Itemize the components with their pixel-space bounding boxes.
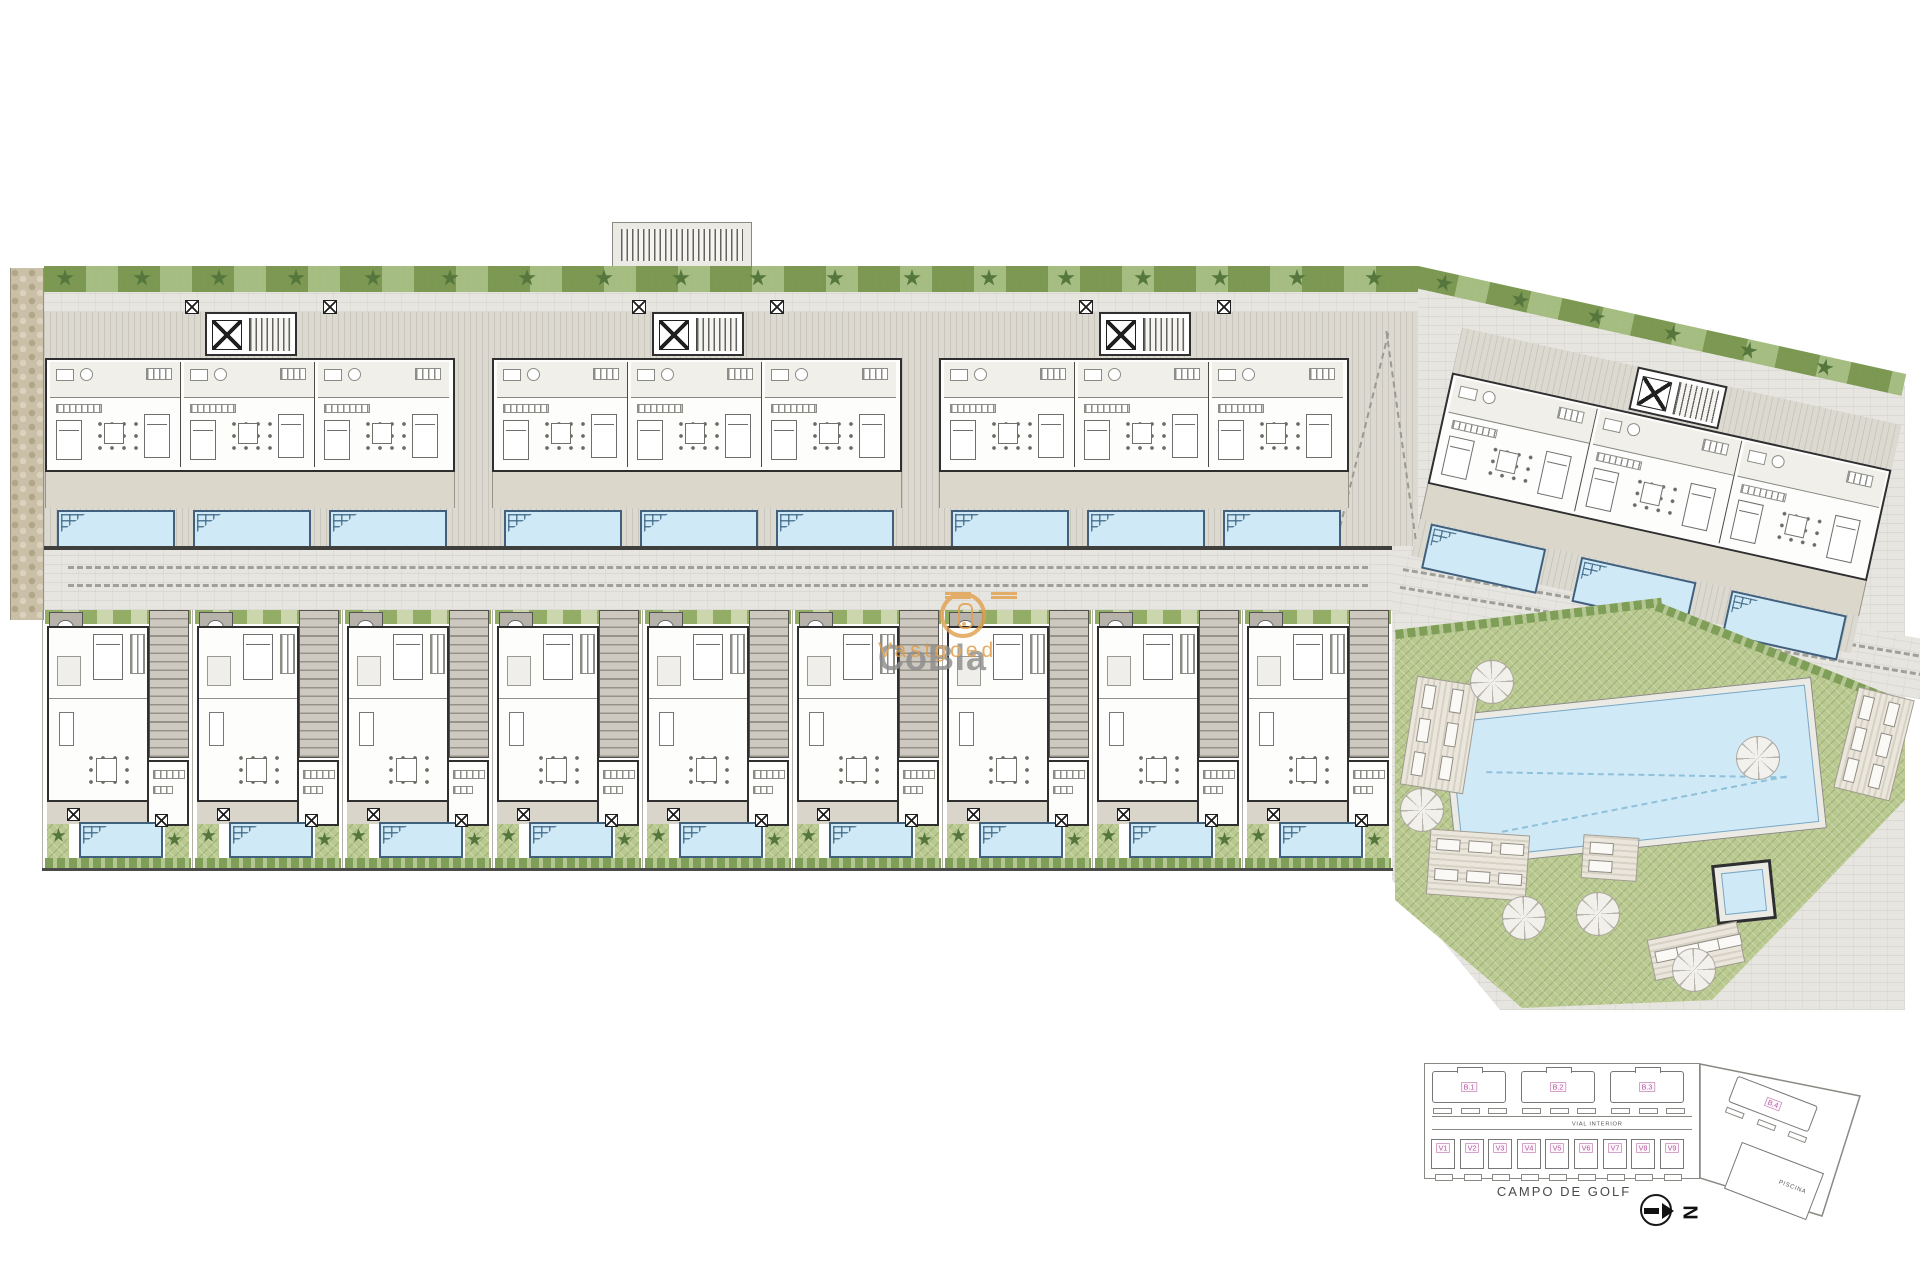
villa-terrace xyxy=(497,802,597,824)
kitchen-counter xyxy=(324,404,370,413)
washbasin xyxy=(950,369,968,381)
pool-steps xyxy=(1430,528,1457,551)
shower xyxy=(1309,368,1335,380)
palm-tree-icon xyxy=(903,269,921,287)
villa xyxy=(642,610,792,868)
palm-tree-icon xyxy=(1211,269,1229,287)
apartment-block xyxy=(492,312,902,546)
villa-house xyxy=(1247,626,1349,802)
bathroom-band xyxy=(944,362,1074,398)
planter-box xyxy=(455,814,468,827)
apartment-unit xyxy=(944,362,1075,467)
kitchen-counter xyxy=(1451,420,1498,439)
watermark-bar-icon xyxy=(991,592,1017,599)
dining-area xyxy=(92,416,138,452)
toilet xyxy=(80,368,93,381)
minimap-road: VIAL INTERIOR xyxy=(1432,1116,1692,1130)
dining-area xyxy=(986,416,1032,452)
toilet xyxy=(527,368,540,381)
pool-steps xyxy=(833,826,857,844)
minimap-villa-label: V7 xyxy=(1608,1143,1622,1153)
palm-umbrella-icon xyxy=(1502,896,1546,940)
dining-area xyxy=(1626,472,1679,517)
bathroom-band xyxy=(50,362,180,398)
palm-tree-icon xyxy=(364,269,382,287)
kitchen-counter xyxy=(1203,770,1235,779)
planter-box xyxy=(1217,300,1231,314)
shower xyxy=(146,368,172,380)
pool-steps xyxy=(333,514,357,532)
room-partition xyxy=(1099,698,1197,699)
kitchen-counter xyxy=(1218,404,1264,413)
apartments xyxy=(45,358,455,472)
palm-tree-icon xyxy=(1288,269,1306,287)
dining-table xyxy=(1640,482,1664,507)
villa-staircase xyxy=(149,610,189,758)
toilet xyxy=(1626,422,1642,438)
bathroom-band xyxy=(1212,362,1343,398)
villa-rear-hedge xyxy=(45,858,191,868)
planter-box xyxy=(1055,814,1068,827)
dining-area xyxy=(83,750,131,790)
minimap-villa: V2 xyxy=(1460,1139,1484,1169)
pool-steps xyxy=(1283,826,1307,844)
kitchen-counter xyxy=(753,770,785,779)
palm-tree-icon xyxy=(1365,269,1383,287)
bathroom-band xyxy=(765,362,896,398)
bed xyxy=(1172,414,1198,458)
dining-table xyxy=(1132,423,1152,444)
villa-rear-hedge xyxy=(945,858,1091,868)
apartment-unit xyxy=(318,362,449,467)
kitchen-island xyxy=(453,786,473,794)
sofa xyxy=(209,712,224,746)
villa-kitchen xyxy=(897,760,939,826)
watermark: CoBla Vastgoed xyxy=(878,592,1048,638)
apartment-unit xyxy=(1212,362,1343,467)
minimap-block-label: B.3 xyxy=(1639,1082,1655,1092)
villa-staircase xyxy=(1349,610,1389,758)
villa-kitchen xyxy=(747,760,789,826)
room-partition xyxy=(949,698,1047,699)
villa-pool xyxy=(979,822,1063,858)
palm-tree-icon xyxy=(1585,306,1606,327)
washbasin xyxy=(324,369,342,381)
pool-steps xyxy=(1580,562,1607,585)
kitchen-counter xyxy=(903,770,935,779)
villa-house xyxy=(647,626,749,802)
palm-tree-icon xyxy=(1814,357,1835,378)
room-partition xyxy=(199,698,297,699)
bed xyxy=(1293,634,1323,680)
villa-kitchen xyxy=(147,760,189,826)
apartment-unit xyxy=(50,362,181,467)
villa-kitchen xyxy=(1347,760,1389,826)
planter-box xyxy=(605,814,618,827)
villa-terrace xyxy=(947,802,1047,824)
shower xyxy=(1701,438,1729,455)
villa-staircase xyxy=(449,610,489,758)
sun-deck xyxy=(1581,834,1640,882)
bed xyxy=(190,420,216,460)
washbasin xyxy=(1747,450,1767,466)
villa xyxy=(1092,610,1242,868)
villa-house xyxy=(47,626,149,802)
terrace xyxy=(492,472,902,508)
villa-rear-hedge xyxy=(345,858,491,868)
villa-terrace xyxy=(347,802,447,824)
kitchen-island xyxy=(303,786,323,794)
toilet xyxy=(348,368,361,381)
bed xyxy=(1306,414,1332,458)
dining-area xyxy=(833,750,881,790)
palm-tree-icon xyxy=(56,269,74,287)
dining-area xyxy=(1133,750,1181,790)
kitchen-counter xyxy=(1740,484,1787,503)
planter-box xyxy=(67,808,80,821)
staircase xyxy=(1672,382,1720,423)
palm-tree-icon xyxy=(595,269,613,287)
bathroom-band xyxy=(497,362,627,398)
washbasin xyxy=(56,369,74,381)
dining-area xyxy=(533,750,581,790)
shower xyxy=(1556,406,1584,423)
kitchen-island xyxy=(1053,786,1073,794)
dining-table xyxy=(696,758,717,782)
minimap-villa-label: V9 xyxy=(1665,1143,1679,1153)
kitchen-island xyxy=(753,786,773,794)
villa-rear-hedge xyxy=(1245,858,1391,868)
palm-tree-icon xyxy=(518,269,536,287)
side-path xyxy=(10,268,44,620)
apartment-unit xyxy=(765,362,896,467)
villa-pool xyxy=(829,822,913,858)
ensuite-bathroom xyxy=(1107,656,1131,686)
palm-umbrella-icon xyxy=(1576,892,1620,936)
minimap-pools xyxy=(1522,1108,1596,1115)
villa xyxy=(342,610,492,868)
pool-steps xyxy=(61,514,85,532)
washbasin xyxy=(1084,369,1102,381)
north-arrow: N xyxy=(1640,1194,1672,1226)
dining-area xyxy=(673,416,719,452)
toilet xyxy=(795,368,808,381)
bed xyxy=(144,414,170,458)
bed xyxy=(1585,467,1619,512)
planter-box xyxy=(667,808,680,821)
planter-box xyxy=(770,300,784,314)
bed xyxy=(1084,420,1110,460)
ensuite-bathroom xyxy=(507,656,531,686)
bed xyxy=(843,634,873,680)
shower xyxy=(415,368,441,380)
bed xyxy=(324,420,350,460)
villa-pool xyxy=(679,822,763,858)
pool-lane-line xyxy=(1502,775,1787,832)
kitchen-counter xyxy=(603,770,635,779)
apartments xyxy=(492,358,902,472)
minimap-villa: V7 xyxy=(1603,1139,1627,1169)
dining-table xyxy=(246,758,267,782)
wardrobe xyxy=(130,634,145,674)
villa-staircase xyxy=(749,610,789,758)
dining-area xyxy=(1771,504,1824,549)
dining-area xyxy=(1254,416,1300,452)
sofa xyxy=(1109,712,1124,746)
dining-area xyxy=(683,750,731,790)
dining-table xyxy=(846,758,867,782)
pool-steps xyxy=(197,514,221,532)
planter-box xyxy=(755,814,768,827)
pool-steps xyxy=(955,514,979,532)
wardrobe xyxy=(280,634,295,674)
bathroom-band xyxy=(1448,377,1596,443)
dining-area xyxy=(1120,416,1166,452)
palm-tree-icon xyxy=(1738,340,1759,361)
elevator-icon xyxy=(1636,376,1672,412)
wardrobe xyxy=(1180,634,1195,674)
kitchen-counter xyxy=(303,770,335,779)
bed xyxy=(637,420,663,460)
shower xyxy=(280,368,306,380)
dining-table xyxy=(996,758,1017,782)
boundary-hedge-top xyxy=(44,266,1418,292)
dining-area xyxy=(233,750,281,790)
bed xyxy=(1537,451,1572,500)
villa xyxy=(192,610,342,868)
dining-table xyxy=(546,758,567,782)
dining-table xyxy=(1784,514,1808,539)
palm-tree-icon xyxy=(749,269,767,287)
palm-tree-icon xyxy=(1134,269,1152,287)
shower xyxy=(1040,368,1066,380)
ensuite-bathroom xyxy=(657,656,681,686)
ensuite-bathroom xyxy=(207,656,231,686)
sofa xyxy=(1259,712,1274,746)
villa-terrace xyxy=(1097,802,1197,824)
staircase xyxy=(249,318,291,351)
sofa xyxy=(809,712,824,746)
planter-box xyxy=(217,808,230,821)
minimap-villa: V9 xyxy=(1660,1139,1684,1169)
minimap-block-label: B.2 xyxy=(1550,1082,1566,1092)
bed xyxy=(725,414,751,458)
villa-terrace xyxy=(647,802,747,824)
kitchen-counter xyxy=(1596,452,1643,471)
washbasin xyxy=(1218,369,1236,381)
washbasin xyxy=(1602,418,1622,434)
planter-box xyxy=(632,300,646,314)
villas-boundary-line xyxy=(42,868,1393,871)
kitchen-counter xyxy=(1084,404,1130,413)
villa-house xyxy=(1097,626,1199,802)
villa-rear-hedge xyxy=(795,858,941,868)
bathroom-band xyxy=(184,362,314,398)
minimap-villa-label: V3 xyxy=(1493,1143,1507,1153)
pool-steps xyxy=(233,826,257,844)
dining-table xyxy=(96,758,117,782)
planter-box xyxy=(967,808,980,821)
minimap-pools xyxy=(1611,1108,1685,1115)
wardrobe xyxy=(1330,634,1345,674)
toilet xyxy=(1242,368,1255,381)
palm-tree-icon xyxy=(287,269,305,287)
dining-table xyxy=(238,423,258,444)
minimap-block: B.1 xyxy=(1432,1071,1506,1103)
dining-area xyxy=(226,416,272,452)
minimap-villa: V6 xyxy=(1574,1139,1598,1169)
dining-area xyxy=(383,750,431,790)
bed xyxy=(1038,414,1064,458)
sofa xyxy=(59,712,74,746)
bed xyxy=(693,634,723,680)
toilet xyxy=(1481,390,1497,406)
palm-tree-icon xyxy=(672,269,690,287)
shower xyxy=(1846,471,1874,488)
kitchen-counter xyxy=(453,770,485,779)
minimap: B.1 B.2 B.3 VIAL INTERIOR V1 xyxy=(1424,1060,1904,1250)
apartment-unit xyxy=(497,362,628,467)
minimap-villa: V5 xyxy=(1545,1139,1569,1169)
planter-box xyxy=(367,808,380,821)
dining-area xyxy=(1283,750,1331,790)
sofa xyxy=(659,712,674,746)
bed xyxy=(1826,515,1861,564)
palm-tree-icon xyxy=(1433,272,1454,293)
staircase xyxy=(696,318,738,351)
bed xyxy=(1143,634,1173,680)
room-partition xyxy=(349,698,447,699)
dining-table xyxy=(998,423,1018,444)
villa-terrace xyxy=(47,802,147,824)
villa-kitchen xyxy=(297,760,339,826)
bed xyxy=(1730,499,1764,544)
wardrobe xyxy=(1030,634,1045,674)
palm-tree-icon xyxy=(980,269,998,287)
elevator-icon xyxy=(212,320,242,350)
bed xyxy=(993,634,1023,680)
minimap-block: B.2 xyxy=(1521,1071,1595,1103)
palm-tree-icon xyxy=(1662,323,1683,344)
palm-tree-icon xyxy=(133,269,151,287)
villa-pool xyxy=(1279,822,1363,858)
villa-pool xyxy=(79,822,163,858)
site-plan: CoBla Vastgoed B.1 B.2 B.3 xyxy=(0,0,1920,1280)
kitchen-island xyxy=(1353,786,1373,794)
sofa xyxy=(959,712,974,746)
villa-house xyxy=(347,626,449,802)
planter-box xyxy=(155,814,168,827)
bed xyxy=(56,420,82,460)
palm-umbrella-icon xyxy=(1672,948,1716,992)
bed xyxy=(1218,420,1244,460)
bed xyxy=(591,414,617,458)
apartment-unit xyxy=(184,362,315,467)
minimap-villa-label: V8 xyxy=(1636,1143,1650,1153)
washbasin xyxy=(1458,386,1478,402)
washbasin xyxy=(190,369,208,381)
minimap-piscina-label: PISCINA xyxy=(1773,1166,1813,1209)
planter-box xyxy=(305,814,318,827)
dining-table xyxy=(396,758,417,782)
washbasin xyxy=(771,369,789,381)
villa-rear-hedge xyxy=(1095,858,1241,868)
toilet xyxy=(1770,454,1786,470)
villa-terrace xyxy=(1247,802,1347,824)
stair-core xyxy=(652,312,744,356)
bed xyxy=(412,414,438,458)
shower xyxy=(727,368,753,380)
minimap-villa: V1 xyxy=(1431,1139,1455,1169)
kids-pool xyxy=(1711,859,1777,925)
sofa xyxy=(359,712,374,746)
kitchen-island xyxy=(1203,786,1223,794)
minimap-villa-label: V6 xyxy=(1579,1143,1593,1153)
ensuite-bathroom xyxy=(1257,656,1281,686)
kitchen-counter xyxy=(1353,770,1385,779)
villa-pool xyxy=(229,822,313,858)
palm-tree-icon xyxy=(1509,289,1530,310)
pool-steps xyxy=(1731,595,1758,618)
apartment-block xyxy=(939,312,1349,546)
washbasin xyxy=(637,369,655,381)
pool-steps xyxy=(983,826,1007,844)
walkway-top xyxy=(44,292,1418,312)
palm-umbrella-icon xyxy=(1736,736,1780,780)
bed xyxy=(93,634,123,680)
kitchen-counter xyxy=(153,770,185,779)
villa-staircase xyxy=(299,610,339,758)
ensuite-bathroom xyxy=(357,656,381,686)
kitchen-island xyxy=(903,786,923,794)
room-partition xyxy=(799,698,897,699)
elevator-icon xyxy=(1106,320,1136,350)
bed xyxy=(543,634,573,680)
bed xyxy=(503,420,529,460)
planter-box xyxy=(1267,808,1280,821)
toilet xyxy=(1108,368,1121,381)
bed xyxy=(1441,435,1475,480)
planter-box xyxy=(817,808,830,821)
wardrobe xyxy=(580,634,595,674)
ensuite-bathroom xyxy=(57,656,81,686)
pool-steps xyxy=(83,826,107,844)
access-road xyxy=(44,550,1392,610)
stair-core xyxy=(205,312,297,356)
kitchen-counter xyxy=(771,404,817,413)
elevator-icon xyxy=(659,320,689,350)
toilet xyxy=(214,368,227,381)
palm-tree-icon xyxy=(1057,269,1075,287)
villa-staircase xyxy=(1199,610,1239,758)
minimap-villa: V8 xyxy=(1631,1139,1655,1169)
kitchen-island xyxy=(153,786,173,794)
palm-tree-icon xyxy=(210,269,228,287)
kitchen-counter xyxy=(637,404,683,413)
pool-water xyxy=(1721,869,1767,915)
bed xyxy=(771,420,797,460)
dining-table xyxy=(372,423,392,444)
room-partition xyxy=(499,698,597,699)
villa xyxy=(492,610,642,868)
minimap-villa-label: V5 xyxy=(1551,1143,1565,1153)
villa-terrace xyxy=(797,802,897,824)
villa-kitchen xyxy=(1197,760,1239,826)
planter-box xyxy=(1117,808,1130,821)
kitchen-counter xyxy=(1053,770,1085,779)
dining-table xyxy=(819,423,839,444)
villa xyxy=(1242,610,1392,868)
